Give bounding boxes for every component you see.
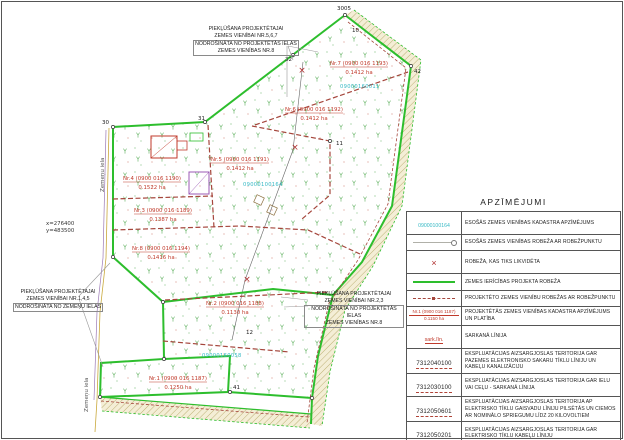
callout-line: PIEKĻŪŠANA PROJEKTĒTAJAI bbox=[4, 289, 112, 296]
callout-line: ZEMES VIENĪBAI NR.5,6,7 bbox=[182, 33, 310, 40]
svg-text:0.1250 ha: 0.1250 ha bbox=[164, 385, 191, 391]
svg-text:0.1130 ha: 0.1130 ha bbox=[221, 310, 248, 316]
callout-line: ZEMES VIENĪBAI NR.1,4,5 bbox=[4, 296, 112, 303]
legend-symbol-cadnum: 09000100164 bbox=[418, 223, 450, 229]
svg-text:x=276400: x=276400 bbox=[46, 221, 75, 227]
legend-row: 7312050201EKSPLUATĀCIJAS AIZSARGJOSLAS T… bbox=[407, 422, 621, 440]
point-label: 42 bbox=[414, 69, 421, 75]
legend-symbol-code: 7312050201 bbox=[416, 433, 451, 440]
callout-access-top: PIEKĻŪŠANA PROJEKTĒTAJAI ZEMES VIENĪBAI … bbox=[182, 26, 310, 56]
svg-text:Nr.8 (0900 016 1194): Nr.8 (0900 016 1194) bbox=[132, 246, 190, 252]
legend-row: 7312030100EKSPLUATĀCIJAS AIZSARGJOSLAS T… bbox=[407, 374, 621, 397]
legend-symbol-xmark: × bbox=[431, 258, 436, 268]
point-label: 10 bbox=[352, 28, 359, 34]
legend-row: sark.līn.SARKANĀ LĪNIJA bbox=[407, 325, 621, 348]
street-name: Zemeņu iela bbox=[84, 378, 90, 412]
legend-label: ROBEŽA, KAS TIKS LIKVIDĒTA bbox=[462, 251, 621, 274]
callout-line: NODROŠINĀTA NO PROJEKTĒTĀS IELAS bbox=[195, 41, 297, 48]
callout-line: ZEMES VIENĪBAI NR.2,3 bbox=[304, 298, 404, 305]
legend-label: PROJEKTĒTĀS ZEMES VIENĪBAS KADASTRA APZĪ… bbox=[462, 307, 621, 326]
legend-row: Nr.1 (0900 016 1187)0.1150 haPROJEKTĒTĀS… bbox=[407, 307, 621, 326]
svg-text:0.1416 ha: 0.1416 ha bbox=[147, 255, 174, 261]
legend-label: EKSPLUATĀCIJAS AIZSARGJOSLAS TERITORIJA … bbox=[462, 348, 621, 373]
svg-text:0.1387 ha: 0.1387 ha bbox=[149, 217, 176, 223]
svg-text:Nr.5 (0900 016 1191): Nr.5 (0900 016 1191) bbox=[211, 157, 269, 163]
street-name: Zemeņu iela bbox=[100, 158, 106, 192]
legend-row: 7312040100EKSPLUATĀCIJAS AIZSARGJOSLAS T… bbox=[407, 348, 621, 373]
legend-row: ZEMES IERĪCĪBAS PROJEKTA ROBEŽA bbox=[407, 274, 621, 291]
legend-symbol-sark: sark.līn. bbox=[425, 337, 444, 344]
legend-label: ZEMES IERĪCĪBAS PROJEKTA ROBEŽA bbox=[462, 274, 621, 291]
legend-symbol-exline bbox=[413, 242, 455, 243]
legend-symbol-code: 7312030100 bbox=[416, 385, 451, 393]
callout-line: NODROŠINĀTA NO ZEMEŅU IELAS bbox=[15, 304, 101, 311]
point-label: 41 bbox=[233, 385, 240, 391]
legend-row: 09000100164ESOŠĀS ZEMES VIENĪBAS KADASTR… bbox=[407, 212, 621, 235]
point-label: 31 bbox=[198, 116, 205, 122]
svg-text:Nr.1 (0900 016 1187): Nr.1 (0900 016 1187) bbox=[149, 376, 207, 382]
callout-line: ZEMES VIENĪBAS NR.8 bbox=[195, 48, 297, 55]
x-mark-icon: × bbox=[298, 66, 306, 76]
legend-label: ESOŠĀS ZEMES VIENĪBAS KADASTRA APZĪMĒJUM… bbox=[462, 212, 621, 235]
callout-access-left: PIEKĻŪŠANA PROJEKTĒTAJAI ZEMES VIENĪBAI … bbox=[4, 289, 112, 312]
point-label: 11 bbox=[336, 141, 343, 147]
callout-line: ZEMES VIENĪBAS NR.8 bbox=[306, 320, 402, 327]
legend-row: PROJEKTĒTO ZEMES VIENĪBU ROBEŽAS AR ROBE… bbox=[407, 291, 621, 307]
svg-text:Nr.7 (0900 016 1193): Nr.7 (0900 016 1193) bbox=[330, 61, 388, 67]
svg-text:Nr.3 (0900 016 1189): Nr.3 (0900 016 1189) bbox=[134, 208, 192, 214]
legend-label: EKSPLUATĀCIJAS AIZSARGJOSLAS TERITORIJA … bbox=[462, 374, 621, 397]
callout-line: PIEKĻŪŠANA PROJEKTĒTAJAI bbox=[182, 26, 310, 33]
svg-text:0.1522 ha: 0.1522 ha bbox=[138, 185, 165, 191]
coordinate-label: x=276400 y=483500 bbox=[46, 221, 75, 234]
legend-label: EKSPLUATĀCIJAS AIZSARGJOSLAS TERITORIJA … bbox=[462, 422, 621, 440]
legend-label: EKSPLUATĀCIJAS AIZSARGJOSLAS TERITORIJA … bbox=[462, 397, 621, 422]
svg-text:Nr.2 (0900 016 1188): Nr.2 (0900 016 1188) bbox=[206, 301, 264, 307]
legend-symbol-code: 7312050601 bbox=[416, 409, 451, 417]
existing-cadastre-number: 09000100164 bbox=[243, 182, 283, 188]
point-label: 12 bbox=[246, 330, 253, 336]
point-label: 3005 bbox=[337, 6, 351, 12]
existing-cadastre-number: 09000160058 bbox=[202, 353, 242, 359]
svg-text:y=483500: y=483500 bbox=[46, 228, 75, 234]
legend-symbol-reddash bbox=[413, 298, 455, 299]
legend-table-body: 09000100164ESOŠĀS ZEMES VIENĪBAS KADASTR… bbox=[407, 212, 621, 440]
cadastral-plan-sheet: × × × 3005 10 32 31 30 42 11 12 41 Nr.7 … bbox=[0, 0, 624, 440]
legend-row: ×ROBEŽA, KAS TIKS LIKVIDĒTA bbox=[407, 251, 621, 274]
legend-row: 7312050601EKSPLUATĀCIJAS AIZSARGJOSLAS T… bbox=[407, 397, 621, 422]
legend-label: PROJEKTĒTO ZEMES VIENĪBU ROBEŽAS AR ROBE… bbox=[462, 291, 621, 307]
x-mark-icon: × bbox=[291, 143, 299, 153]
callout-line: NODROŠINĀTA NO PROJEKTĒTĀS IELAS bbox=[306, 306, 402, 320]
legend-symbol-greenline bbox=[413, 281, 455, 283]
legend-row: ESOŠĀS ZEMES VIENĪBAS ROBEŽA AR ROBEŽPUN… bbox=[407, 235, 621, 251]
legend-label: ESOŠĀS ZEMES VIENĪBAS ROBEŽA AR ROBEŽPUN… bbox=[462, 235, 621, 251]
svg-text:Nr.6 (0900 016 1192): Nr.6 (0900 016 1192) bbox=[285, 107, 343, 113]
legend-symbol-plabel: Nr.1 (0900 016 1187)0.1150 ha bbox=[409, 309, 459, 323]
svg-text:0.1412 ha: 0.1412 ha bbox=[226, 166, 253, 172]
legend-title: APZĪMĒJUMI bbox=[406, 197, 621, 207]
existing-cadastre-number: 09000160011 bbox=[340, 84, 380, 90]
legend-table: 09000100164ESOŠĀS ZEMES VIENĪBAS KADASTR… bbox=[406, 211, 621, 440]
legend-symbol-code: 7312040100 bbox=[416, 361, 451, 369]
point-label: 30 bbox=[102, 120, 109, 126]
svg-text:0.1412 ha: 0.1412 ha bbox=[300, 116, 327, 122]
svg-text:Nr.4 (0900 016 1190): Nr.4 (0900 016 1190) bbox=[123, 176, 181, 182]
svg-text:0.1412 ha: 0.1412 ha bbox=[345, 70, 372, 76]
point-label: 32 bbox=[285, 57, 292, 63]
callout-access-right: PIEKĻŪŠANA PROJEKTĒTAJAI ZEMES VIENĪBAI … bbox=[304, 291, 404, 328]
callout-line: PIEKĻŪŠANA PROJEKTĒTAJAI bbox=[304, 291, 404, 298]
x-mark-icon: × bbox=[243, 275, 251, 285]
legend: APZĪMĒJUMI 09000100164ESOŠĀS ZEMES VIENĪ… bbox=[406, 197, 621, 440]
legend-label: SARKANĀ LĪNIJA bbox=[462, 325, 621, 348]
